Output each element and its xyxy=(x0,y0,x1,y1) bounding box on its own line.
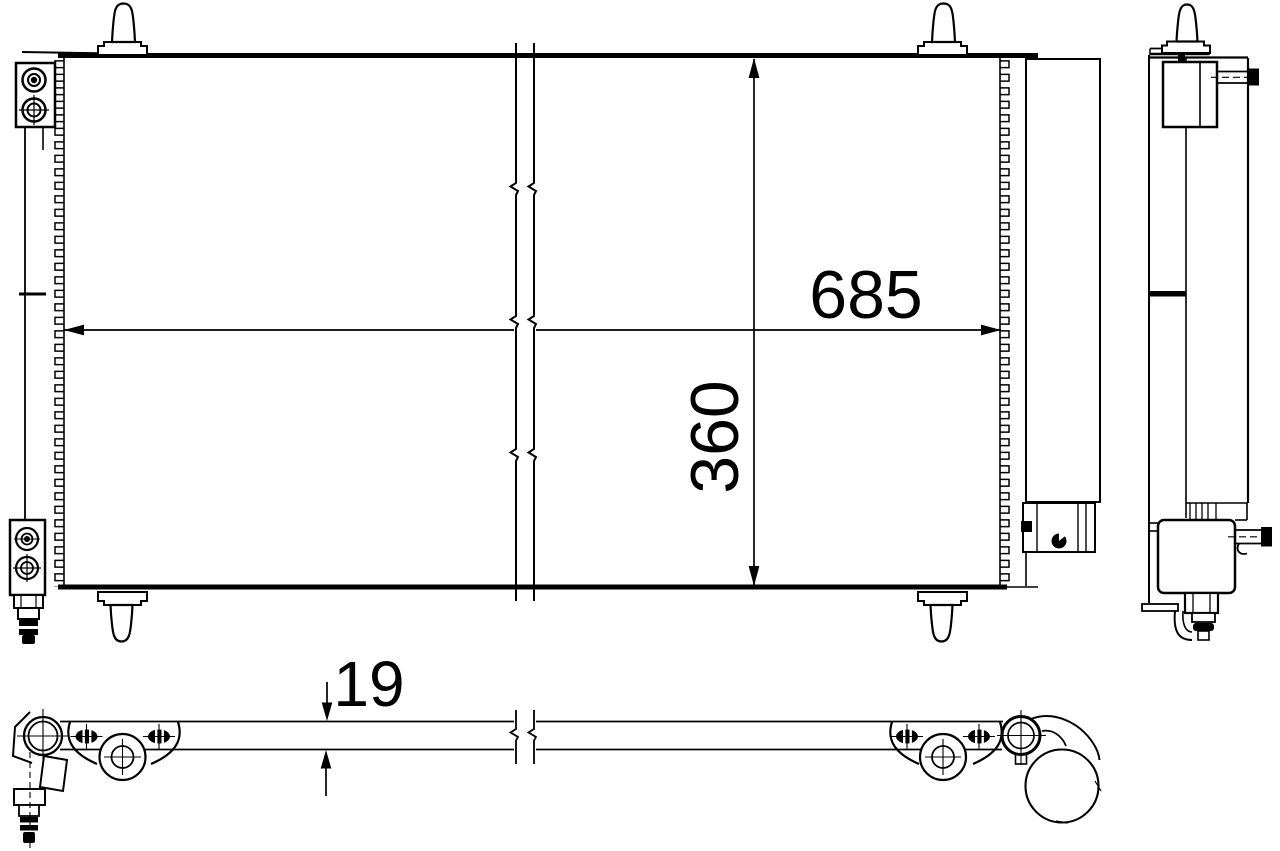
receiver-drier xyxy=(1021,59,1100,586)
fitting-block-bottom-left xyxy=(10,520,45,644)
side-mounting-pin xyxy=(1162,5,1210,54)
side-weld-mark xyxy=(1149,291,1186,297)
slot-hole xyxy=(71,724,103,749)
break-lines-bottom xyxy=(511,710,537,764)
pipe-fitting-top-icon xyxy=(1247,69,1259,86)
dimension-width-label: 685 xyxy=(809,257,922,333)
dimension-depth-label: 19 xyxy=(333,648,404,720)
bottom-view: 19 xyxy=(13,648,1101,848)
side-bottom-block xyxy=(1149,503,1272,593)
receiver-drier-bracket xyxy=(1021,503,1095,586)
side-view xyxy=(1142,5,1272,641)
side-top-connector xyxy=(1163,54,1259,127)
header-bracket-top-left xyxy=(16,63,55,127)
arrowhead-down-icon xyxy=(322,703,333,722)
break-lines-front xyxy=(511,43,537,601)
mounting-pin-top-right xyxy=(918,4,967,56)
service-port-fitting xyxy=(14,595,43,644)
arrowhead-up-icon xyxy=(321,750,332,769)
core-fins-right xyxy=(1000,60,1010,587)
left-pipe-line xyxy=(19,128,46,520)
slot-hole xyxy=(143,724,175,749)
bottom-left-bracket xyxy=(13,709,180,848)
dimension-height: 360 xyxy=(677,58,759,586)
arrowhead-down-icon xyxy=(749,566,760,586)
technical-drawing-page: 685 360 xyxy=(0,0,1280,851)
mounting-pin-bottom-left xyxy=(98,592,147,642)
dimension-height-label: 360 xyxy=(677,380,753,493)
slot-hole xyxy=(891,724,923,749)
bottom-bar xyxy=(60,722,1003,750)
receiver-drier-bottom-circle xyxy=(1026,750,1099,823)
mounting-pin-bottom-right xyxy=(918,592,967,642)
arrowhead-right-icon xyxy=(981,325,1001,336)
mounting-pin-top-left xyxy=(98,4,147,56)
front-view: 685 360 xyxy=(10,4,1100,645)
arrowhead-left-icon xyxy=(64,325,84,336)
pipe-fitting-bottom-icon xyxy=(1261,527,1272,547)
side-lower-fittings xyxy=(1142,593,1218,640)
dimension-width: 685 xyxy=(64,257,1001,335)
bottom-right-bracket xyxy=(890,710,1101,823)
slot-hole xyxy=(963,724,995,749)
core-fins-left xyxy=(54,60,64,587)
arrowhead-up-icon xyxy=(749,58,760,78)
condenser-technical-drawing: 685 360 xyxy=(0,0,1280,851)
bottom-left-fitting xyxy=(14,752,67,848)
